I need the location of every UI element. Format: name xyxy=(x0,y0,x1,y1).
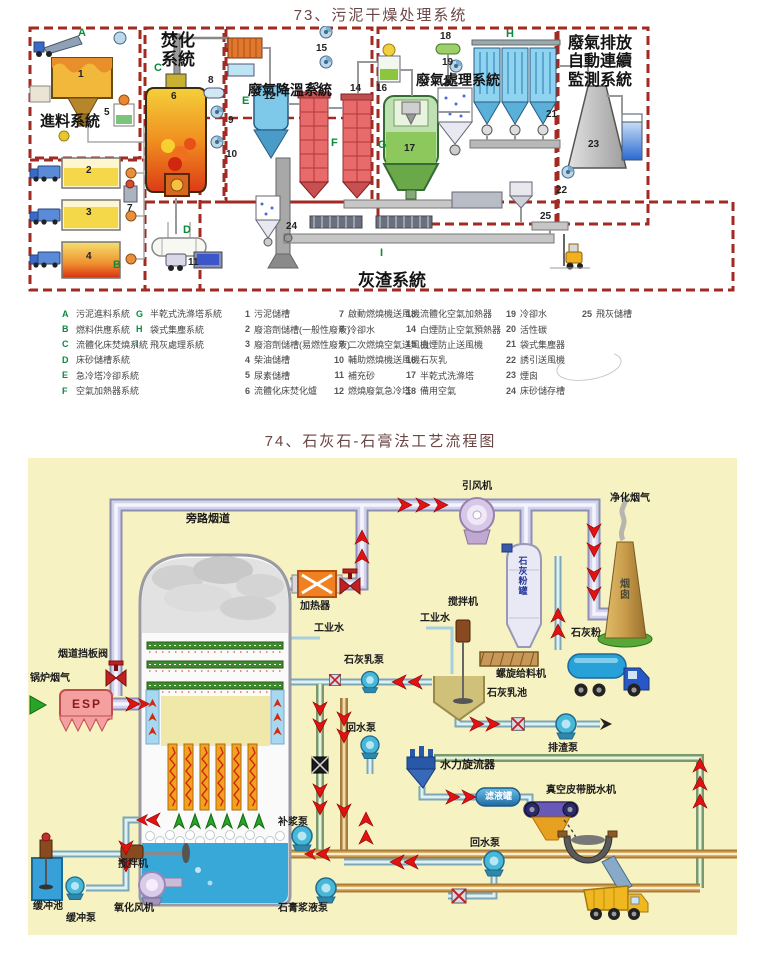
label-return-pump-upper: 回水泵 xyxy=(346,724,376,735)
return-water-pump-lower xyxy=(484,851,504,876)
drain-valve xyxy=(512,718,525,731)
return-line-valve xyxy=(452,889,466,903)
label-monitoring-system: 廢氣排放自動連續監測系統 xyxy=(568,34,638,89)
letter-B: B xyxy=(113,260,121,271)
letter-C: C xyxy=(154,63,162,74)
unit-1: 1 xyxy=(78,70,84,80)
fuel-truck xyxy=(30,166,60,182)
legend-row: 13流體化空氣加熱器 xyxy=(402,306,501,321)
outflow-arrow xyxy=(600,718,612,730)
fly-ash-conveyor xyxy=(470,140,560,148)
fuel-truck xyxy=(30,209,60,225)
label-bypass-duct: 旁路烟道 xyxy=(186,514,230,526)
boiler-gas-arrow xyxy=(30,696,46,714)
unit-12: 12 xyxy=(264,92,275,102)
label-lime-pool: 石灰乳池 xyxy=(487,689,527,700)
legend-row: H袋式集塵系統 xyxy=(136,321,222,336)
label-damper-valve: 烟道挡板阀 xyxy=(58,650,108,661)
label-supply-pump: 补浆泵 xyxy=(278,818,308,829)
legend-row: 22誘引送風機 xyxy=(502,352,565,367)
unit-22: 22 xyxy=(556,186,567,196)
legend-row: G半乾式洗滌塔系統 xyxy=(136,306,222,321)
drain-pump xyxy=(556,714,576,739)
letter-I: I xyxy=(380,248,383,259)
unit-18: 18 xyxy=(440,32,451,42)
unit-21: 21 xyxy=(546,110,557,120)
label-lime-silo: 石灰粉罐 xyxy=(517,556,526,596)
label-clean-gas: 净化烟气 xyxy=(610,494,650,505)
unit-10: 10 xyxy=(226,150,237,160)
label-heater: 加热器 xyxy=(300,602,330,613)
legend-row: 17半乾式洗滌塔 xyxy=(402,368,501,383)
reheater xyxy=(292,571,342,597)
return-water-pump-upper xyxy=(361,736,379,759)
legend-col-items-3: 13流體化空氣加熱器 14白煙防止空氣預熱器 15白煙防止送風機 16石灰乳 1… xyxy=(402,306,501,398)
stack-chimney-23 xyxy=(568,86,626,168)
silo-top-fan xyxy=(502,544,512,552)
activated-carbon-silo-20 xyxy=(438,88,472,155)
duct-base xyxy=(268,254,298,268)
label-chimney: 烟囱 xyxy=(617,578,628,600)
letter-A: A xyxy=(78,28,86,39)
pool-mixer-motor xyxy=(456,620,470,642)
fly-ash-silo-25 xyxy=(510,182,532,208)
unit-2: 2 xyxy=(86,166,92,176)
unit-25: 25 xyxy=(540,212,551,222)
label-boiler-flue-gas: 锅炉烟气 xyxy=(30,674,70,685)
label-hydrocyclone: 水力旋流器 xyxy=(440,760,495,772)
unit-14: 14 xyxy=(350,84,361,94)
startup-burner xyxy=(228,38,262,58)
label-esp: ESP xyxy=(72,698,102,711)
urea-tank-5 xyxy=(114,95,134,126)
conveyor-roller xyxy=(284,234,292,242)
unit-24: 24 xyxy=(286,222,297,232)
legend-row: E急冷塔冷卻系統 xyxy=(62,368,148,383)
gear-icon xyxy=(114,32,126,44)
legend-row: 16石灰乳 xyxy=(402,352,501,367)
unit-15: 15 xyxy=(316,44,327,54)
cooling-water-8 xyxy=(204,88,224,98)
fly-ash-conveyor-25 xyxy=(532,222,568,230)
label-id-fan: 引风机 xyxy=(462,482,492,493)
pump-icon xyxy=(126,168,136,178)
legend-col-items-5: 25飛灰儲槽 xyxy=(578,306,632,321)
limestone-gypsum-diagram: 锅炉烟气 ESP 烟道挡板阀 旁路烟道 加热器 工业水 引风机 净化烟气 烟囱 … xyxy=(28,458,737,935)
ash-conveyor-upper xyxy=(344,200,464,208)
unit-17: 17 xyxy=(404,144,415,154)
legend-col-items-4: 19冷卻水 20活性碳 21袋式集塵器 22誘引送風機 23煙囪 24床砂儲存槽 xyxy=(502,306,565,398)
label-drain-pump: 排渣泵 xyxy=(548,744,578,755)
unit-4: 4 xyxy=(86,252,92,262)
unit-16: 16 xyxy=(376,84,387,94)
unit-13: 13 xyxy=(308,82,319,92)
unit-23: 23 xyxy=(588,140,599,150)
label-feed-system: 進料系統 xyxy=(40,110,100,131)
label-oxidation-fan: 氧化风机 xyxy=(114,904,154,915)
forklift xyxy=(550,234,590,270)
sludge-tipper-truck xyxy=(34,36,82,57)
legend-row: D床砂儲槽系統 xyxy=(62,352,148,367)
sand-cart-11 xyxy=(166,254,186,271)
label-mixer-tower: 搅拌机 xyxy=(118,860,148,871)
baghouse-filters-21 xyxy=(474,48,556,135)
label-mixer-silo: 搅拌机 xyxy=(448,598,478,609)
legend-row: 15白煙防止送風機 xyxy=(402,337,501,352)
diagram74-title: 74、石灰石-石膏法工艺流程图 xyxy=(0,430,761,451)
legend-row: 19冷卻水 xyxy=(502,306,565,321)
fan-icon-15b xyxy=(320,56,332,68)
letter-G: G xyxy=(378,140,387,151)
label-lime-powder: 石灰粉 xyxy=(571,629,601,640)
fan-icon-10 xyxy=(211,136,223,148)
unit-3: 3 xyxy=(86,208,92,218)
page: 73、污泥干燥处理系统 xyxy=(0,0,761,953)
diagram73-legend: A污泥進料系統 B燃料供應系統 C流體化床焚燒系統 D床砂儲槽系統 E急冷塔冷卻… xyxy=(0,302,761,398)
burner-fan-7 xyxy=(124,180,137,202)
ash-conveyor-right xyxy=(452,192,502,208)
unit-5: 5 xyxy=(104,108,110,118)
label-vacuum-belt: 真空皮带脱水机 xyxy=(546,786,616,797)
riser-black-valve xyxy=(312,757,328,773)
stack-chimney xyxy=(598,496,652,647)
screw-feeder xyxy=(480,652,538,666)
label-ash-system: 灰渣系統 xyxy=(358,266,426,291)
label-cooling-system: 廢氣降溫系統 xyxy=(248,80,332,100)
bed-sand-cooler xyxy=(152,222,206,256)
label-gypsum-pump: 石膏浆液泵 xyxy=(278,904,328,915)
fan-icon-22 xyxy=(562,166,574,178)
unit-19: 19 xyxy=(442,58,453,68)
induced-draft-fan xyxy=(460,498,494,544)
lime-tanker-truck xyxy=(568,654,649,697)
label-return-pump-lower: 回水泵 xyxy=(470,839,500,850)
air-preheater-column-14 xyxy=(341,94,373,198)
lime-milk-pool xyxy=(434,620,484,720)
diagram73-title: 73、污泥干燥处理系统 xyxy=(0,4,761,25)
label-buffer-pump: 缓冲泵 xyxy=(66,914,96,925)
legend-row: I飛灰處理系統 xyxy=(136,337,222,352)
letter-H: H xyxy=(506,29,514,40)
ash-screw-boxes xyxy=(310,216,432,228)
letter-D: D xyxy=(183,225,191,236)
gypsum-slurry-pump xyxy=(316,878,336,903)
legend-row: 25飛灰儲槽 xyxy=(578,306,632,321)
legend-row: 24床砂儲存槽 xyxy=(502,383,565,398)
letter-E: E xyxy=(242,96,249,107)
legend-row: 14白煙防止空氣預熱器 xyxy=(402,321,501,336)
pump-icon xyxy=(126,254,136,264)
lime-milk-beaker-16 xyxy=(378,44,400,82)
label-treatment-system: 廢氣處理系統 xyxy=(416,70,500,90)
buffer-pump xyxy=(66,877,84,900)
rotary-feeder xyxy=(59,131,69,141)
unit-9: 9 xyxy=(228,116,234,126)
label-incinerate-system: 焚化系統 xyxy=(161,32,201,69)
lime-milk-pump xyxy=(362,672,379,693)
fuel-truck xyxy=(30,252,60,268)
hydrocyclone xyxy=(407,746,435,788)
region-box-ash xyxy=(145,202,733,290)
baghouse-header-pipe xyxy=(472,40,560,45)
label-filtrate-tank: 滤液罐 xyxy=(485,792,512,801)
buffer-pool xyxy=(32,833,62,900)
legend-row: 21袋式集塵器 xyxy=(502,337,565,352)
unit-11: 11 xyxy=(188,258,199,268)
legend-col-letters-2: G半乾式洗滌塔系統 H袋式集塵系統 I飛灰處理系統 xyxy=(136,306,222,352)
monitor-water-tank xyxy=(622,114,642,160)
unit-8: 8 xyxy=(208,76,214,86)
industrial-water-pipes xyxy=(290,628,452,674)
letter-F: F xyxy=(331,138,338,149)
label-lime-pump: 石灰乳泵 xyxy=(344,656,384,667)
label-buffer-pool: 缓冲池 xyxy=(33,902,63,913)
unit-7: 7 xyxy=(127,204,133,214)
legend-row: 18備用空氣 xyxy=(402,383,501,398)
label-industrial-water-tower: 工业水 xyxy=(314,624,344,635)
sludge-drying-diagram: 進料系統 焚化系統 廢氣降溫系統 廢氣處理系統 廢氣排放自動連續監測系統 灰渣系… xyxy=(28,26,737,294)
water-tank xyxy=(228,64,254,76)
fan-icon-9 xyxy=(211,106,223,118)
supply-pump xyxy=(292,826,312,851)
legend-row: 20活性碳 xyxy=(502,321,565,336)
legend-row: F空氣加熱器系統 xyxy=(62,383,148,398)
label-screw-feeder: 螺旋给料机 xyxy=(496,670,546,681)
unit-20: 20 xyxy=(443,78,454,88)
unit-6: 6 xyxy=(171,92,177,102)
fan-icon-15a xyxy=(320,26,332,38)
ash-conveyor-long xyxy=(284,234,554,243)
feed-bin xyxy=(30,86,50,102)
label-industrial-water-mixer: 工业水 xyxy=(420,614,450,625)
air-heater-column-13 xyxy=(298,92,330,198)
lime-line-valve xyxy=(329,674,340,685)
spare-air-18 xyxy=(436,44,460,54)
